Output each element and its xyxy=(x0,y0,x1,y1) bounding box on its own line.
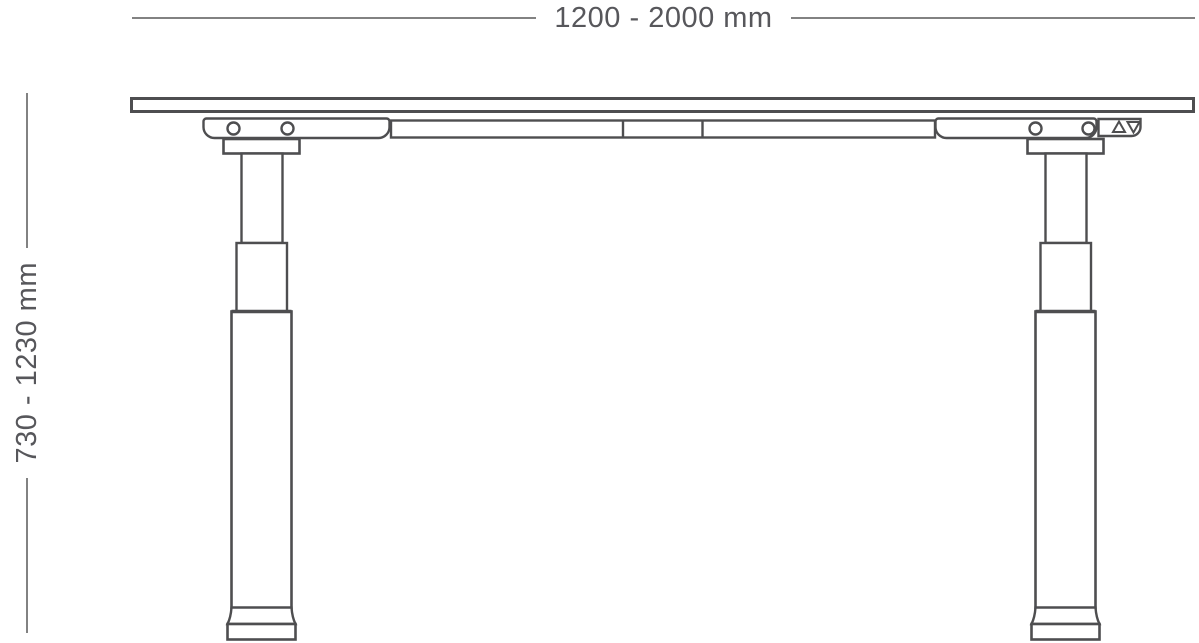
screw-hole-icon xyxy=(282,123,294,135)
foot-skirt-right xyxy=(1032,608,1100,625)
screw-hole-icon xyxy=(1030,123,1042,135)
desk-diagram: 1200 - 2000 mm 730 - 1230 mm xyxy=(0,0,1199,643)
leg-middle-stage-left xyxy=(237,243,288,312)
leg-lower-stage-left xyxy=(232,312,292,609)
frame-rail-right xyxy=(936,119,1097,139)
leg-middle-stage-right xyxy=(1041,243,1092,312)
leg-left xyxy=(224,139,300,640)
leg-bracket-right xyxy=(1028,139,1104,154)
leg-upper-stage-left xyxy=(242,154,283,244)
leg-lower-stage-right xyxy=(1036,312,1096,609)
foot-base-right xyxy=(1032,624,1100,640)
screw-hole-icon xyxy=(228,123,240,135)
foot-base-left xyxy=(228,624,296,640)
height-control-box xyxy=(1099,119,1141,136)
screw-hole-icon xyxy=(1083,123,1095,135)
leg-bracket-left xyxy=(224,139,300,154)
under-frame-beam xyxy=(391,121,935,138)
leg-upper-stage-right xyxy=(1046,154,1087,244)
desk-line-drawing xyxy=(0,0,1199,643)
leg-right xyxy=(1028,139,1104,640)
desk-top xyxy=(132,99,1194,112)
foot-skirt-left xyxy=(228,608,296,625)
